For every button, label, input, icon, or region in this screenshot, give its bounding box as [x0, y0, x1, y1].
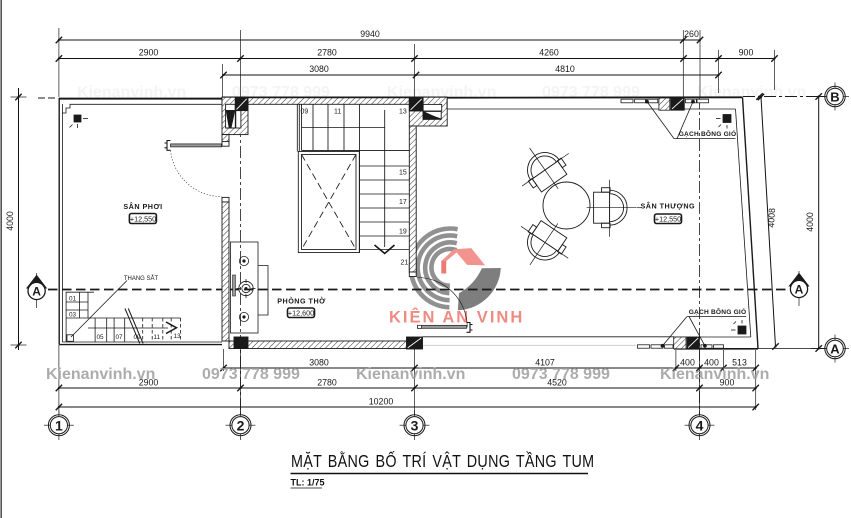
svg-text:PHÒNG THỜ: PHÒNG THỜ — [277, 297, 326, 306]
svg-text:4000: 4000 — [5, 211, 15, 231]
svg-text:09: 09 — [134, 334, 142, 341]
svg-text:19: 19 — [399, 229, 407, 236]
svg-text:900: 900 — [739, 48, 754, 58]
svg-text:THANG SẮT: THANG SẮT — [124, 274, 159, 282]
svg-text:Kienanvinh.vn: Kienanvinh.vn — [46, 366, 155, 383]
svg-text:09: 09 — [301, 109, 309, 116]
svg-text:GẠCH BÔNG GIÓ: GẠCH BÔNG GIÓ — [679, 129, 737, 138]
svg-text:KIÊN AN VINH: KIÊN AN VINH — [389, 308, 524, 327]
svg-text:Kienanvinh.vn: Kienanvinh.vn — [660, 366, 769, 383]
svg-text:0973 778 999: 0973 778 999 — [512, 366, 610, 383]
svg-text:260: 260 — [684, 29, 699, 39]
svg-text:07: 07 — [116, 334, 124, 341]
svg-text:Kienanvinh.vn: Kienanvinh.vn — [356, 366, 465, 383]
svg-text:9940: 9940 — [360, 29, 380, 39]
svg-text:A: A — [32, 284, 41, 298]
svg-text:21: 21 — [401, 260, 409, 267]
svg-text:4260: 4260 — [539, 48, 559, 58]
svg-text:+12,550: +12,550 — [130, 214, 156, 223]
svg-text:2780: 2780 — [317, 378, 337, 388]
svg-text:0973 778 999: 0973 778 999 — [202, 366, 300, 383]
svg-text:3080: 3080 — [309, 64, 329, 74]
svg-text:05: 05 — [97, 334, 105, 341]
svg-text:1: 1 — [55, 417, 63, 433]
svg-text:+12,600: +12,600 — [288, 309, 314, 318]
svg-text:2: 2 — [237, 417, 245, 433]
svg-text:Kienanvinh.vn: Kienanvinh.vn — [697, 84, 806, 101]
svg-text:13: 13 — [399, 109, 407, 116]
svg-text:3080: 3080 — [309, 358, 329, 368]
svg-text:GẠCH BÔNG GIÓ: GẠCH BÔNG GIÓ — [689, 307, 747, 316]
svg-text:11: 11 — [154, 334, 161, 341]
svg-text:MẶT BẰNG BỐ TRÍ VẬT DỤNG TẦNG: MẶT BẰNG BỐ TRÍ VẬT DỤNG TẦNG TUM — [291, 450, 594, 472]
svg-text:A: A — [830, 342, 840, 357]
svg-text:03: 03 — [69, 312, 77, 319]
svg-text:SÂN THƯỢNG: SÂN THƯỢNG — [640, 202, 695, 211]
svg-text:4008: 4008 — [766, 208, 777, 228]
svg-text:4000: 4000 — [805, 212, 815, 232]
svg-text:+12,550: +12,550 — [655, 215, 681, 224]
svg-text:4: 4 — [696, 417, 704, 433]
svg-text:A: A — [795, 282, 804, 296]
svg-text:B: B — [830, 90, 839, 105]
svg-text:TL: 1/75: TL: 1/75 — [291, 478, 325, 488]
svg-text:13: 13 — [174, 333, 182, 340]
svg-text:17: 17 — [399, 199, 407, 206]
svg-text:15: 15 — [399, 170, 407, 177]
svg-text:4810: 4810 — [555, 64, 575, 74]
svg-text:11: 11 — [334, 109, 341, 116]
svg-text:SÂN PHƠI: SÂN PHƠI — [123, 202, 162, 211]
svg-text:2900: 2900 — [139, 48, 159, 58]
svg-text:01: 01 — [69, 296, 77, 303]
svg-text:10200: 10200 — [369, 397, 394, 407]
svg-text:3: 3 — [411, 417, 419, 433]
svg-text:2780: 2780 — [317, 48, 337, 58]
